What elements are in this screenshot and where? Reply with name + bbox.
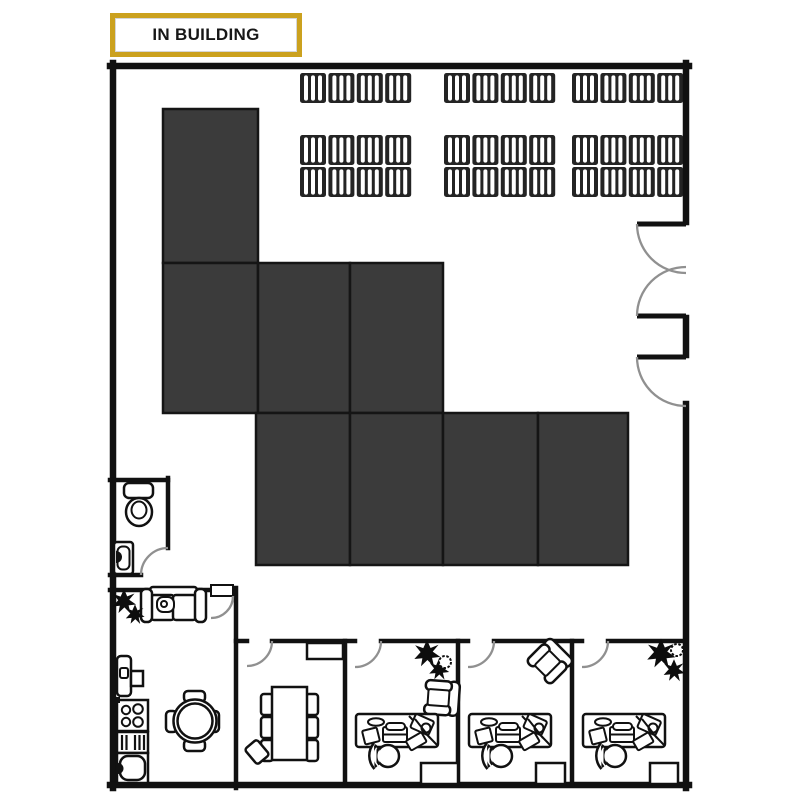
door-swing-arc [247,641,272,666]
pallet-icon [572,167,598,197]
pallet-rack-strip [572,167,683,197]
storage-zone [350,413,443,565]
pallet-rack-strip [444,135,555,165]
pallet-icon [600,135,626,165]
storage-zone [443,413,538,565]
cabinet-icon [650,763,678,784]
right-wall-doors [637,224,686,406]
pallet-icon [657,73,683,103]
door-swing-arc [637,267,686,316]
pallet-icon [629,167,655,197]
door-swing-arc [355,641,381,667]
pallet-icon [572,135,598,165]
pallet-icon [328,73,354,103]
pallet-icon [501,167,527,197]
storage-zone [258,263,350,413]
desk-icon [583,714,665,769]
pallet-icon [529,135,555,165]
pallet-rack-strip [572,73,683,103]
door-swing-arc [468,641,494,667]
pallet-icon [472,167,498,197]
stove-icon [113,697,148,731]
pallet-rack-strip [300,73,411,103]
storage-zone [256,413,350,565]
credenza-icon [307,643,343,659]
pallet-icon [600,167,626,197]
pallet-icon [385,167,411,197]
bathroom [114,483,153,574]
pallet-rack-strip [444,73,555,103]
pallet-rack-strip [300,167,411,197]
pallet-icon [629,73,655,103]
storage-zone [350,263,443,413]
lounge [113,587,207,624]
pallet-icon [300,167,326,197]
storage-zone [163,109,258,263]
kitchen [113,656,219,783]
cabinet-icon [421,763,458,784]
dishwasher-icon [117,732,148,753]
refrigerator-icon [117,656,143,696]
storage-zone [163,263,258,413]
pallet-icon [357,135,383,165]
pallet-icon [657,135,683,165]
pallet-icon [328,135,354,165]
desk-icon [356,714,438,769]
door-swing-arc [637,224,686,273]
pallet-icon [472,135,498,165]
dining-table-icon [166,691,219,751]
pallet-rack-strip [572,135,683,165]
pallet-icon [385,73,411,103]
meeting-room [244,643,343,765]
pallet-icon [300,73,326,103]
door-swing-arc [637,357,686,406]
floor-plan-svg [0,0,800,800]
pallet-icon [529,167,555,197]
pallet-icon [300,135,326,165]
pallet-icon [657,167,683,197]
kitchen-sink-icon [117,753,148,783]
pallet-icon [501,135,527,165]
pallet-rack-strip [300,135,411,165]
pallet-icon [501,73,527,103]
door-swing-arc [211,596,233,618]
pallet-icon [357,73,383,103]
plant-icon [647,639,685,682]
pallet-icon [629,135,655,165]
pallet-icon [600,73,626,103]
door-leaf [211,585,233,596]
pallet-icon [444,73,470,103]
door-swing-arc [582,641,608,667]
pallet-icon [444,167,470,197]
plant-icon [414,640,451,680]
conference-table-icon [272,687,307,760]
cabinet-icon [536,763,565,784]
pallet-icon [357,167,383,197]
desk-icon [469,714,551,769]
bathroom-sink-icon [114,542,133,574]
pallet-icon [529,73,555,103]
armchair-icon [526,637,574,685]
pallet-racks-layer [300,73,683,197]
sofa-icon [141,587,206,622]
door-swing-arc [141,548,168,575]
storage-zone [538,413,628,565]
pallet-icon [385,135,411,165]
pallet-icon [328,167,354,197]
armchair-icon [424,680,460,716]
office-2 [469,637,574,784]
toilet-icon [124,483,153,526]
pallet-icon [444,135,470,165]
pallet-icon [572,73,598,103]
pallet-icon [472,73,498,103]
floor-plan-canvas: IN BUILDING [0,0,800,800]
pallet-rack-strip [444,167,555,197]
